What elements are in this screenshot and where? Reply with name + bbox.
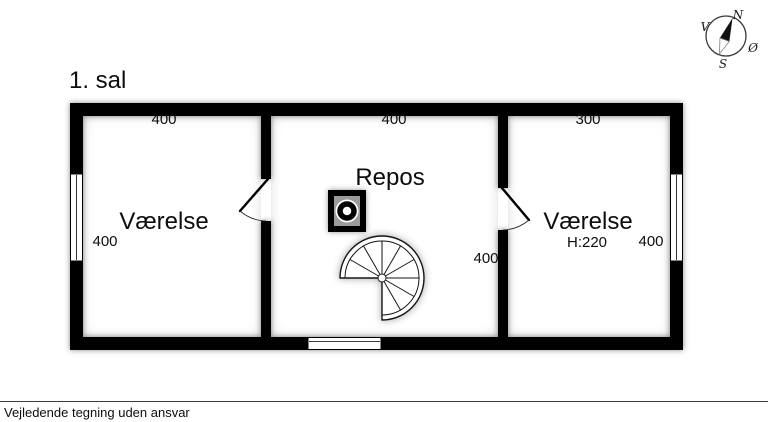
partition-right-lower [498, 230, 508, 337]
dim-side-left-room: 400 [92, 234, 117, 249]
floor-title: 1. sal [69, 69, 126, 93]
partition-left-lower [261, 221, 271, 337]
door-leaf [240, 179, 268, 211]
door-swing-arc [503, 220, 529, 230]
staircase-hub [378, 274, 386, 282]
ceiling-height-label: H:220 [567, 235, 607, 250]
dim-top-middle-room: 400 [381, 112, 406, 127]
room-label-middle: Repos [355, 166, 424, 190]
door-left-room [240, 179, 268, 221]
footer-divider [0, 401, 768, 402]
compass-label-east: Ø [747, 41, 759, 55]
dim-top-left-room: 400 [151, 112, 176, 127]
partition-right-upper [498, 116, 508, 188]
window-east [671, 174, 683, 261]
window-west [71, 174, 83, 261]
compass-label-west: V [701, 20, 711, 34]
room-label-right: Værelse [543, 210, 632, 234]
dim-top-right-room: 300 [575, 112, 600, 127]
room-label-left: Værelse [119, 210, 208, 234]
compass-label-south: S [719, 57, 727, 71]
door-swing-arc [240, 211, 266, 221]
spiral-staircase [340, 236, 424, 320]
dim-side-middle-room: 400 [473, 251, 498, 266]
door-leaf [502, 188, 529, 220]
floor-plan-drawing: N V Ø S [0, 0, 768, 422]
chimney-symbol [328, 190, 366, 232]
floor-plan-page: N V Ø S 1. sal 400 400 300 400 400 400 V… [0, 0, 768, 422]
window-south [308, 338, 381, 350]
partition-left-upper [261, 116, 271, 179]
door-right-room [502, 188, 529, 230]
footer-disclaimer: Vejledende tegning uden ansvar [4, 405, 190, 420]
compass-rose: N V Ø S [701, 8, 759, 71]
dim-side-right-room: 400 [638, 234, 663, 249]
compass-label-north: N [732, 8, 744, 22]
